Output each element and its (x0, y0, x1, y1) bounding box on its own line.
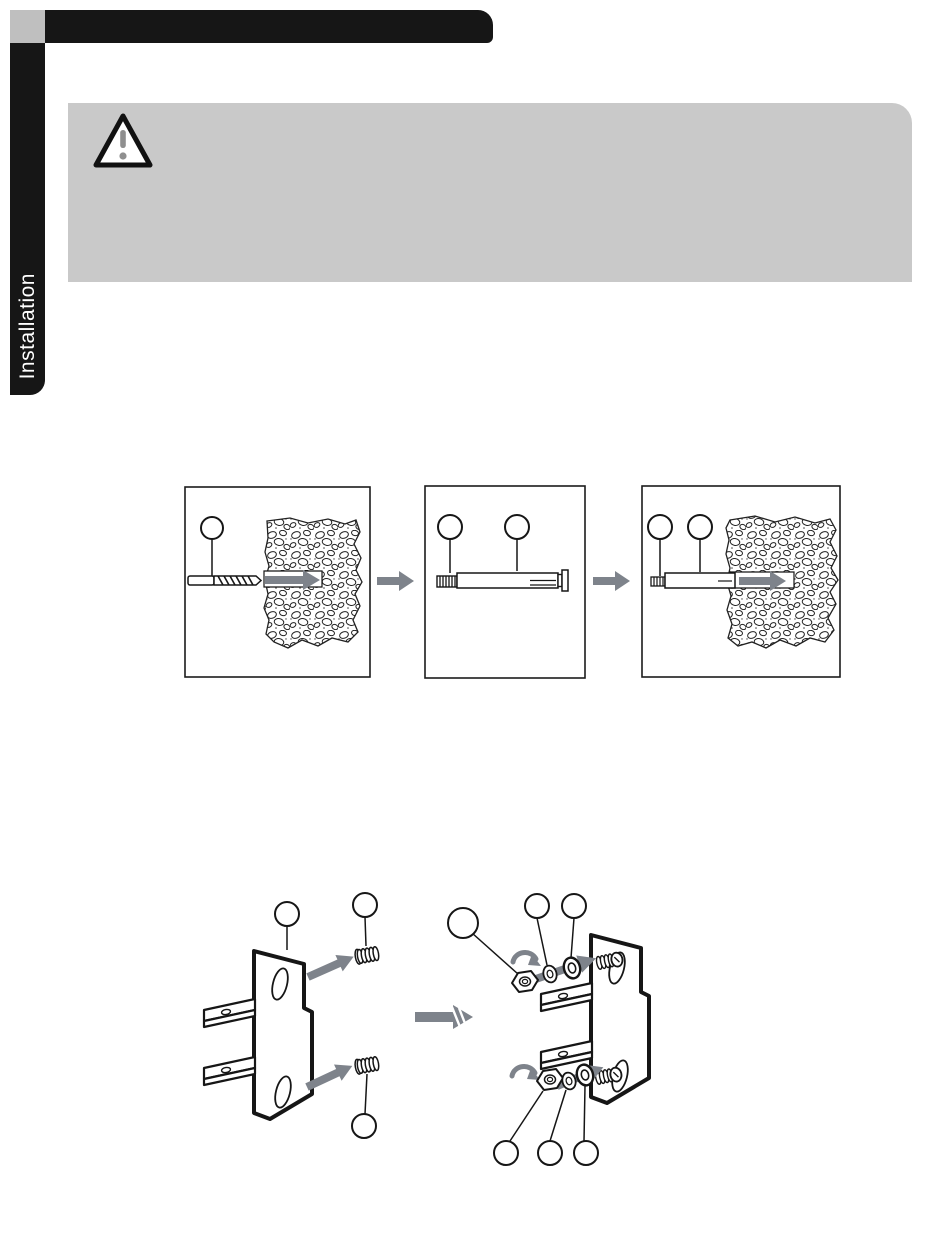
callout-circle (688, 515, 712, 539)
callout-circle (562, 894, 586, 918)
drill-bit (214, 576, 261, 585)
sidebar-tab-installation: Installation (10, 43, 45, 395)
callout-circle (494, 1141, 518, 1165)
callout-circle (538, 1141, 562, 1165)
sidebar-tab-label: Installation (16, 273, 40, 379)
figure-anchor-installation-steps (170, 470, 860, 700)
diagram-bracket-screws (204, 893, 380, 1138)
warning-panel (68, 103, 912, 282)
diagram-bracket-nuts-washers (448, 894, 649, 1165)
screw-spring (354, 1056, 380, 1075)
anchor-bolt (437, 570, 568, 591)
callout-circle (352, 1114, 376, 1138)
arrow-right-icon (415, 1005, 473, 1029)
rotate-arrow-icon (513, 953, 541, 966)
header-bar (45, 10, 493, 43)
callout-circle (353, 893, 377, 917)
screw-spring (354, 946, 380, 965)
callout-circle (201, 517, 223, 539)
callout-circle (505, 515, 529, 539)
arrow-right-icon (377, 571, 414, 591)
drill-shank (188, 576, 214, 585)
flat-washer (542, 964, 559, 984)
warning-triangle-icon (93, 112, 153, 170)
arrow-right-icon (593, 571, 630, 591)
manual-page: Installation (0, 0, 950, 1241)
callout-circle (275, 902, 299, 926)
callout-circle (525, 894, 549, 918)
mounting-bracket (204, 951, 312, 1119)
callout-circle (438, 515, 462, 539)
rotate-arrow-icon (512, 1067, 540, 1080)
arrow-right-icon (304, 948, 357, 985)
corner-accent-square (10, 10, 45, 43)
callout-circle (574, 1141, 598, 1165)
hex-nut (512, 971, 538, 992)
callout-circle (448, 908, 478, 938)
callout-circle (648, 515, 672, 539)
figure-bracket-assembly (180, 880, 680, 1180)
flat-washer (561, 1071, 578, 1091)
